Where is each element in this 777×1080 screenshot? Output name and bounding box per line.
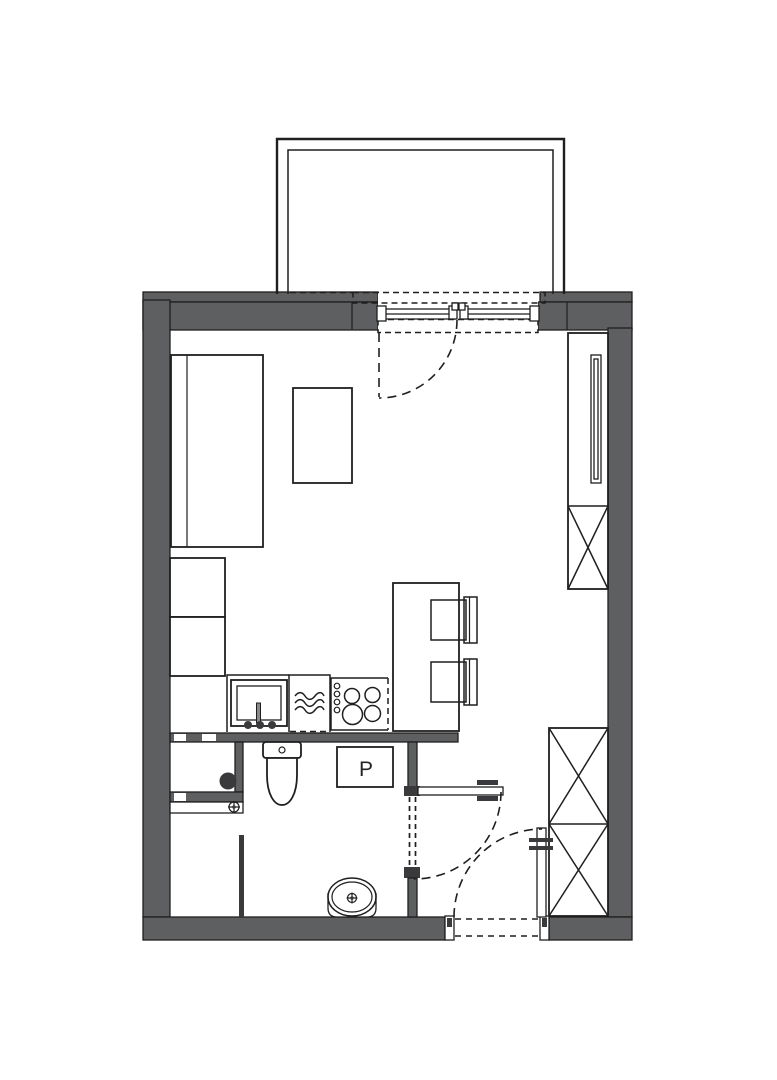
entry-door: [445, 828, 553, 940]
closet-partition: [239, 835, 244, 917]
stove-knob: [334, 683, 340, 689]
kitchen-cabinet-lower: [170, 617, 225, 676]
wave-symbol: [295, 693, 324, 700]
door-handle: [529, 838, 553, 842]
stove: [331, 678, 388, 730]
faucet: [257, 703, 261, 723]
washing-machine: P: [337, 747, 393, 787]
bottom-wall-right: [549, 917, 632, 940]
dining-peninsula: [393, 583, 459, 731]
interior-walls: [170, 733, 458, 917]
kitchen-sink: [227, 675, 289, 732]
burner: [365, 688, 380, 703]
washbasin: [328, 878, 376, 917]
kitchen-cabinet-upper: [170, 558, 225, 617]
washing-machine-label: P: [359, 758, 373, 781]
stove-knob: [334, 691, 340, 697]
burner: [343, 705, 363, 725]
stove-knob: [334, 699, 340, 705]
bathroom-door-swing-arc: [414, 792, 501, 879]
burner: [345, 689, 360, 704]
entry-door-swing-arc: [454, 829, 542, 917]
door-handle: [477, 796, 498, 801]
hall-wardrobe: [549, 728, 608, 916]
door-handle: [529, 846, 553, 850]
burner: [365, 706, 381, 722]
door-jamb-block: [404, 867, 420, 878]
bathroom-wall-lower: [408, 878, 417, 917]
left-wall: [143, 300, 170, 917]
water-meter-dot: [220, 773, 237, 790]
bathroom-door: [414, 780, 503, 879]
bathroom-wall-upper: [408, 742, 417, 787]
bathroom-door-leaf: [418, 787, 503, 795]
dishwasher: [289, 675, 330, 732]
door-handle: [477, 780, 498, 785]
bed: [171, 355, 263, 547]
bottom-wall-left: [143, 917, 445, 940]
right-wall: [608, 328, 632, 917]
tall-wardrobe: [568, 333, 608, 589]
side-table: [293, 388, 352, 483]
kitchen: [170, 558, 477, 732]
floor-plan: P: [0, 0, 777, 1080]
shaft-wall: [235, 742, 243, 792]
stove-knob: [334, 707, 340, 713]
bathroom: P: [263, 742, 503, 917]
floor-plan-canvas: P: [0, 0, 777, 1080]
balcony-door-swing-arc: [379, 320, 457, 398]
toilet: [263, 742, 301, 805]
balcony: [277, 139, 564, 294]
